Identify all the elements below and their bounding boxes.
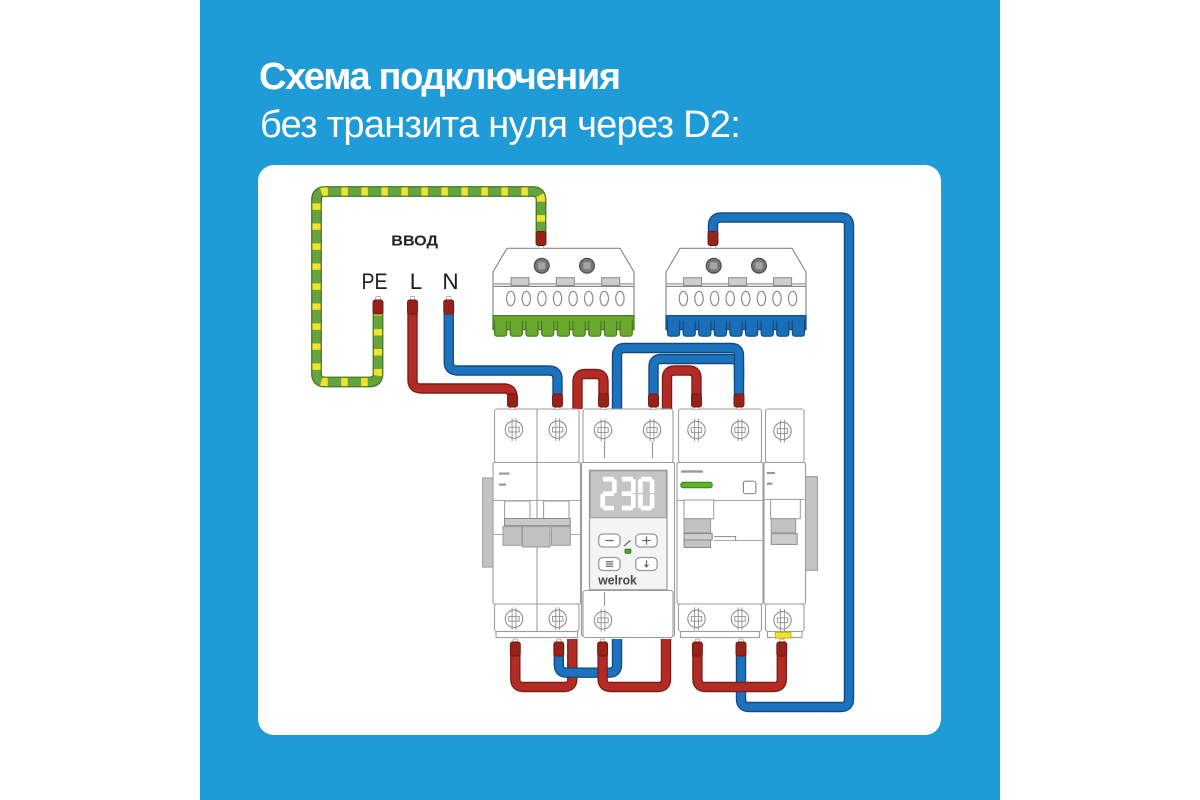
svg-text:welrok: welrok	[597, 573, 637, 588]
svg-text:L: L	[410, 269, 423, 294]
svg-text:PE: PE	[362, 269, 388, 294]
svg-text:ВВОД: ВВОД	[391, 233, 438, 250]
svg-text:N: N	[442, 269, 458, 294]
